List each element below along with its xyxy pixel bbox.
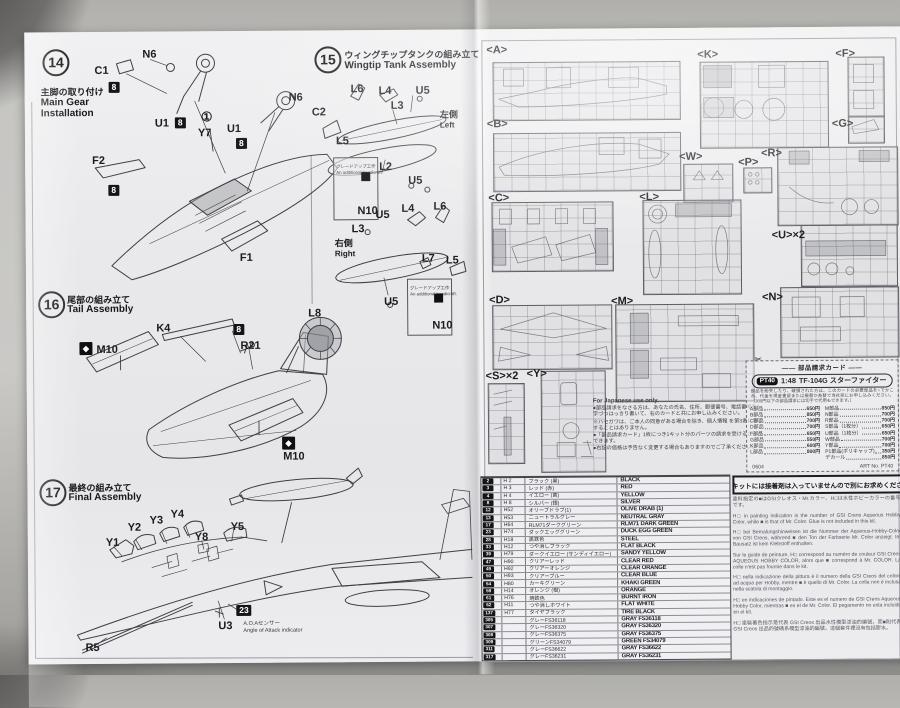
aqueous-number-cell: H74	[502, 529, 526, 535]
color-name-ja-cell: 黒鉄色	[526, 536, 618, 543]
part-label: K4	[156, 323, 170, 334]
aqueous-number-cell: H80	[502, 580, 526, 586]
aqueous-number-cell	[502, 624, 526, 630]
color-name-en-cell: CLEAR RED	[618, 557, 730, 564]
sprue-box	[848, 115, 885, 143]
part-label: <D>	[489, 295, 510, 306]
part-label: Y5	[231, 522, 245, 533]
scissors-icon: ✂	[755, 354, 763, 365]
mr-color-number-cell: 137	[482, 610, 502, 616]
sprue-box	[683, 164, 733, 203]
aqueous-number-cell: H14	[502, 588, 526, 594]
part-label: U3	[218, 621, 232, 632]
color-name-ja-cell: グレーFS36118	[526, 616, 618, 623]
sprue-box	[642, 199, 742, 295]
aqueous-number-cell: H64	[502, 522, 526, 528]
aqueous-number-cell	[502, 639, 526, 645]
kit-name: TF-104G スターファイター	[799, 375, 887, 386]
part-label: N10	[432, 320, 452, 331]
sprue-box	[743, 167, 772, 193]
mr-color-number-cell: 3	[481, 485, 501, 491]
part-label: F1	[240, 253, 253, 264]
aqueous-number-cell: H92	[502, 566, 526, 572]
color-name-ja-cell: クリアーオレンジ	[526, 565, 618, 572]
part-label: Y1	[106, 538, 120, 549]
mr-color-number-cell: 23	[482, 529, 502, 535]
sprue-box	[847, 56, 884, 117]
color-name-ja-cell: 焼鉄色	[526, 594, 618, 601]
aqueous-number-cell: H52	[502, 507, 526, 513]
price-column-left: A部品650円B部品850円C部品700円D部品700円F部品650円G部品55…	[750, 406, 820, 462]
part-label: Y2	[128, 523, 142, 534]
part-label: <N>	[762, 292, 783, 303]
card-code: 0604	[752, 464, 764, 470]
color-name-en-cell: GRAY FS36320	[618, 623, 730, 630]
part-label: <G>	[832, 119, 853, 130]
instruction-sheet-paper: 14 主脚の取り付け Main Gear Installation 15 ウィン…	[24, 26, 900, 664]
aqueous-number-cell: H76	[502, 595, 526, 601]
part-label: L5	[446, 255, 459, 266]
part-label: L6	[351, 84, 364, 95]
color-name-ja-cell: タイヤブラック	[526, 609, 618, 616]
part-label: An additional handicraft.	[336, 167, 383, 178]
sprue-box	[488, 383, 526, 464]
aqueous-number-cell: H79	[502, 551, 526, 557]
color-name-en-cell: GRAY FS36231	[619, 652, 731, 659]
mr-color-number-cell: 28	[482, 537, 502, 543]
parts-request-card: ✂ ―― 部品請求カード ―― PT40 1:48 TF-104G スターファイ…	[746, 359, 900, 472]
part-label: 8	[175, 117, 186, 128]
part-label	[361, 172, 370, 181]
aqueous-number-cell: H77	[502, 610, 526, 616]
mr-color-number-cell: 49	[482, 566, 502, 572]
color-name-en-cell: GRAY FS36118	[618, 616, 730, 623]
color-name-ja-cell: グリーンFS34079	[526, 638, 618, 645]
card-note: 部品を紛失したり、破損された方は、このカードの必要部品を○でかこみ、代金を現金書…	[751, 388, 894, 404]
part-label: <S>×2	[486, 371, 519, 382]
step-title-en: Main Gear Installation	[41, 97, 94, 119]
part-label: <C>	[488, 193, 509, 204]
color-name-ja-cell: グレーFS36622	[527, 646, 619, 653]
color-name-ja-cell: レッド (赤)	[525, 485, 617, 492]
part-label: <M>	[611, 296, 633, 307]
aqueous-number-cell: H 4	[501, 493, 525, 499]
color-row: 317 グレーFS36231 GRAY FS36231	[483, 652, 731, 660]
step-number: 15	[314, 46, 341, 73]
mr-color-number-cell: 17	[482, 522, 502, 528]
part-label: U5	[384, 297, 398, 308]
mr-color-number-cell: 309	[482, 639, 502, 645]
part-label: <K>	[697, 50, 718, 61]
aqueous-number-cell	[502, 617, 526, 623]
color-name-ja-cell: グレーFS36375	[526, 631, 618, 638]
part-label: <W>	[679, 152, 702, 163]
mr-color-number-cell: 13	[482, 515, 502, 521]
sheet-content: 14 主脚の取り付け Main Gear Installation 15 ウィン…	[0, 0, 900, 678]
notice-line: ●部品請求をなさる方は、あなたの氏名、住所、郵便番号、電話番号を1字づつはっきり…	[593, 405, 763, 419]
color-table: 2 H 2 ブラック (黒) BLACK 3 H 3 レッド (赤) RED 4…	[480, 475, 731, 662]
aqueous-number-cell: H18	[502, 536, 526, 542]
paint-note: 塗料指定の■はGSIクレオス・Mr.カラー、H□は水性ホビーカラーの番号です。	[733, 495, 900, 508]
card-header: ―― 部品請求カード ――	[750, 362, 895, 372]
color-name-en-cell: BURNT IRON	[618, 594, 730, 601]
mr-color-number-cell: 8	[482, 500, 502, 506]
part-label: L4	[401, 204, 414, 215]
part-label: U5	[375, 210, 389, 221]
part-label: <U>×2	[772, 230, 805, 241]
aqueous-number-cell: H11	[502, 602, 526, 608]
step-title-en: Wingtip Tank Assembly	[344, 59, 456, 71]
part-label: L8	[308, 308, 321, 319]
part-label: ◆	[79, 342, 92, 355]
part-label: <A>	[486, 45, 507, 56]
step-title-en: Final Assembly	[68, 492, 141, 504]
part-label: U5	[408, 176, 422, 187]
step-title-en: Tail Assembly	[67, 304, 133, 315]
part-label: <P>	[738, 157, 758, 168]
part-label: U5	[416, 86, 430, 97]
part-label: Left	[440, 119, 455, 130]
part-label: N6	[289, 93, 303, 104]
part-label: R5	[86, 643, 100, 654]
paint-note: H□ 塗裝著色指示是代表 GSI Creos 出品水性模型漆油的編號，而■則代表…	[733, 619, 900, 632]
color-name-en-cell: NEUTRAL GRAY	[618, 513, 730, 520]
color-name-en-cell: GRAY FS36375	[618, 630, 730, 637]
color-name-en-cell: ORANGE	[618, 586, 730, 593]
color-name-ja-cell: オレンジ (橙)	[526, 587, 618, 594]
part-label: <B>	[487, 119, 508, 130]
mr-color-number-cell: 4	[481, 493, 501, 499]
mr-color-number-cell: 47	[482, 559, 502, 565]
japanese-only-notice: For Japanese use only. ●部品請求をなさる方は、あなたの氏…	[593, 397, 763, 453]
photo-of-instruction-sheet: { "steps": [ {"num":"14","ja":"主脚の取り付け",…	[0, 0, 900, 675]
mr-color-number-cell: 59	[482, 588, 502, 594]
price-row: L部品800円	[750, 449, 820, 456]
color-name-ja-cell: カーキグリーン	[526, 580, 618, 587]
color-name-en-cell: STEEL	[618, 535, 730, 542]
step-number: 16	[38, 291, 65, 318]
mr-color-number-cell: 33	[482, 544, 502, 550]
part-label: U1	[155, 118, 169, 129]
glue-notice: このキットには接着剤は入っていませんので別にお求めください。	[732, 474, 900, 494]
mr-color-number-cell: 2	[481, 478, 501, 484]
part-label: C2	[312, 107, 326, 118]
color-name-en-cell: SANDY YELLOW	[618, 550, 730, 557]
part-label: 23	[236, 605, 252, 616]
color-name-ja-cell: グレーFS36320	[526, 624, 618, 631]
mr-color-number-cell: 308	[482, 632, 502, 638]
color-name-ja-cell: ダックエッググリーン	[526, 529, 618, 536]
part-label: <R>	[761, 148, 782, 159]
notice-line: ●右記の価格は予告なく変更する場合もありますのでご了承ください。	[593, 445, 763, 452]
part-label: L7	[422, 254, 435, 265]
color-name-en-cell: RED	[617, 484, 729, 491]
part-label: Angle of Attack indicator	[243, 626, 302, 637]
color-name-ja-cell: グレーFS36231	[527, 653, 619, 660]
color-name-ja-cell: RLM71ダークグリーン	[526, 521, 618, 528]
part-label: N6	[142, 50, 156, 61]
kit-number-badge: PT40	[757, 377, 778, 385]
step-number: 17	[39, 479, 66, 506]
mr-color-number-cell: 307	[482, 624, 502, 630]
mr-color-number-cell: 12	[482, 507, 502, 513]
paint-note: Sur le guide de peinture, H□ correspond …	[733, 551, 900, 570]
color-name-en-cell: CLEAR ORANGE	[618, 564, 730, 571]
part-label: <F>	[835, 49, 855, 60]
mr-color-number-cell: 317	[483, 654, 503, 660]
aqueous-number-cell: H53	[502, 515, 526, 521]
color-name-en-cell: FLAT BLACK	[618, 543, 730, 550]
color-name-en-cell: SILVER	[618, 499, 730, 506]
mr-color-number-cell: 62	[482, 602, 502, 608]
part-label: U1	[227, 124, 241, 135]
kit-scale: 1:48	[781, 376, 796, 385]
aqueous-number-cell	[502, 632, 526, 638]
aqueous-number-cell: H12	[502, 544, 526, 550]
part-label: M10	[96, 345, 117, 356]
notice-line: ●「部品請求カード」1枚につき1キット分のパーツの請求を受けることができます。	[593, 431, 763, 445]
card-art-number: ART No. PT40	[860, 463, 894, 469]
part-label: 8	[233, 324, 244, 335]
step-number: 14	[42, 49, 69, 76]
part-label: L3	[352, 224, 365, 235]
sprue-box	[780, 286, 899, 358]
sprue-box	[699, 61, 829, 149]
color-name-ja-cell: つや消しブラック	[526, 543, 618, 550]
sprue-box	[493, 132, 681, 192]
color-name-en-cell: FLAT WHITE	[618, 601, 730, 608]
sprue-box	[801, 224, 898, 287]
part-label: Right	[335, 248, 356, 259]
part-label: <Y>	[527, 369, 547, 380]
mr-color-number-cell: 61	[482, 595, 502, 601]
aqueous-number-cell	[503, 653, 527, 659]
kit-title-line: PT40 1:48 TF-104G スターファイター	[752, 373, 893, 388]
aqueous-number-cell: H90	[502, 558, 526, 564]
part-label: L5	[336, 136, 349, 147]
aqueous-number-cell: H 2	[501, 478, 525, 484]
part-label: ①	[201, 111, 213, 122]
sprue-box	[492, 304, 612, 370]
mr-color-number-cell: 39	[482, 551, 502, 557]
notice-line: ※ハセガワは、ご本人の同意がある場合を除き、個人情報 を第3者に開示することはあ…	[593, 418, 763, 432]
sprue-box	[492, 61, 680, 121]
sprue-box	[491, 201, 613, 272]
color-name-en-cell: CLEAR BLUE	[618, 572, 730, 579]
mr-color-number-cell: 50	[482, 573, 502, 579]
color-name-ja-cell: つや消しホワイト	[526, 602, 618, 609]
part-label: L6	[433, 202, 446, 213]
part-label: 8	[236, 138, 247, 149]
color-name-en-cell: DUCK EGG GREEN	[618, 528, 730, 535]
mr-color-number-cell: 305	[482, 617, 502, 623]
color-name-en-cell: KHAKI GREEN	[618, 579, 730, 586]
mr-color-number-cell: 311	[483, 646, 503, 652]
color-name-ja-cell: ニュートラルグレー	[526, 514, 618, 521]
color-name-ja-cell: クリアーブルー	[526, 572, 618, 579]
color-name-en-cell: OLIVE DRAB (1)	[618, 506, 730, 513]
color-name-en-cell: GRAY FS36622	[619, 645, 731, 652]
price-column-right: M部品850円N部品700円R部品700円S部品（1枚分）650円U部品（1枚分…	[825, 405, 895, 461]
part-label: L4	[379, 86, 392, 97]
aqueous-number-cell: H93	[502, 573, 526, 579]
part-label: R21	[240, 341, 260, 352]
paint-note: H□ nella indicazione della pittura è il …	[733, 574, 900, 593]
part-label: <L>	[639, 192, 659, 203]
paint-note: H□ bei Bemalungshinweisen ist die Nummer…	[733, 529, 900, 548]
color-name-en-cell: TIRE BLACK	[618, 608, 730, 615]
sprue-box	[777, 146, 899, 226]
paint-notes: 塗料指定の■はGSIクレオス・Mr.カラー、H□は水性ホビーカラーの番号です。H…	[733, 495, 900, 636]
color-name-en-cell: BLACK	[617, 477, 729, 484]
part-label: Y3	[150, 516, 164, 527]
color-name-ja-cell: ダークイエロー (サンディイエロー)	[526, 550, 618, 557]
part-label: 8	[109, 82, 120, 93]
color-name-en-cell: YELLOW	[617, 491, 729, 498]
part-label: F2	[92, 156, 105, 167]
mr-color-number-cell: 54	[482, 581, 502, 587]
sprue-box	[615, 303, 755, 402]
paint-note: H□ in painting indication is the number …	[733, 512, 900, 525]
part-label: ◆	[282, 437, 295, 450]
color-name-ja-cell: クリアーレッド	[526, 558, 618, 565]
aqueous-number-cell	[503, 646, 527, 652]
paint-note: H□ en indicaciones de pintado. Este es e…	[733, 596, 900, 615]
part-label: Y4	[171, 509, 185, 520]
color-name-ja-cell: イエロー (黄)	[525, 492, 617, 499]
part-label: 8	[108, 185, 119, 196]
part-label: Y8	[195, 532, 209, 543]
color-name-ja-cell: オリーブドラブ(1)	[526, 507, 618, 514]
color-name-ja-cell: シルバー (銀)	[526, 499, 618, 506]
color-name-en-cell: RLM71 DARK GREEN	[618, 521, 730, 528]
part-label: L3	[391, 101, 404, 112]
aqueous-number-cell: H 3	[501, 485, 525, 491]
color-name-en-cell: GREEN FS34079	[618, 638, 730, 645]
price-row: デカール850円	[825, 455, 895, 462]
color-name-ja-cell: ブラック (黒)	[525, 477, 617, 484]
part-label: Y7	[198, 128, 212, 139]
part-label	[434, 294, 443, 303]
part-label: C1	[94, 66, 108, 77]
aqueous-number-cell: H 8	[502, 500, 526, 506]
part-label: M10	[283, 452, 304, 463]
